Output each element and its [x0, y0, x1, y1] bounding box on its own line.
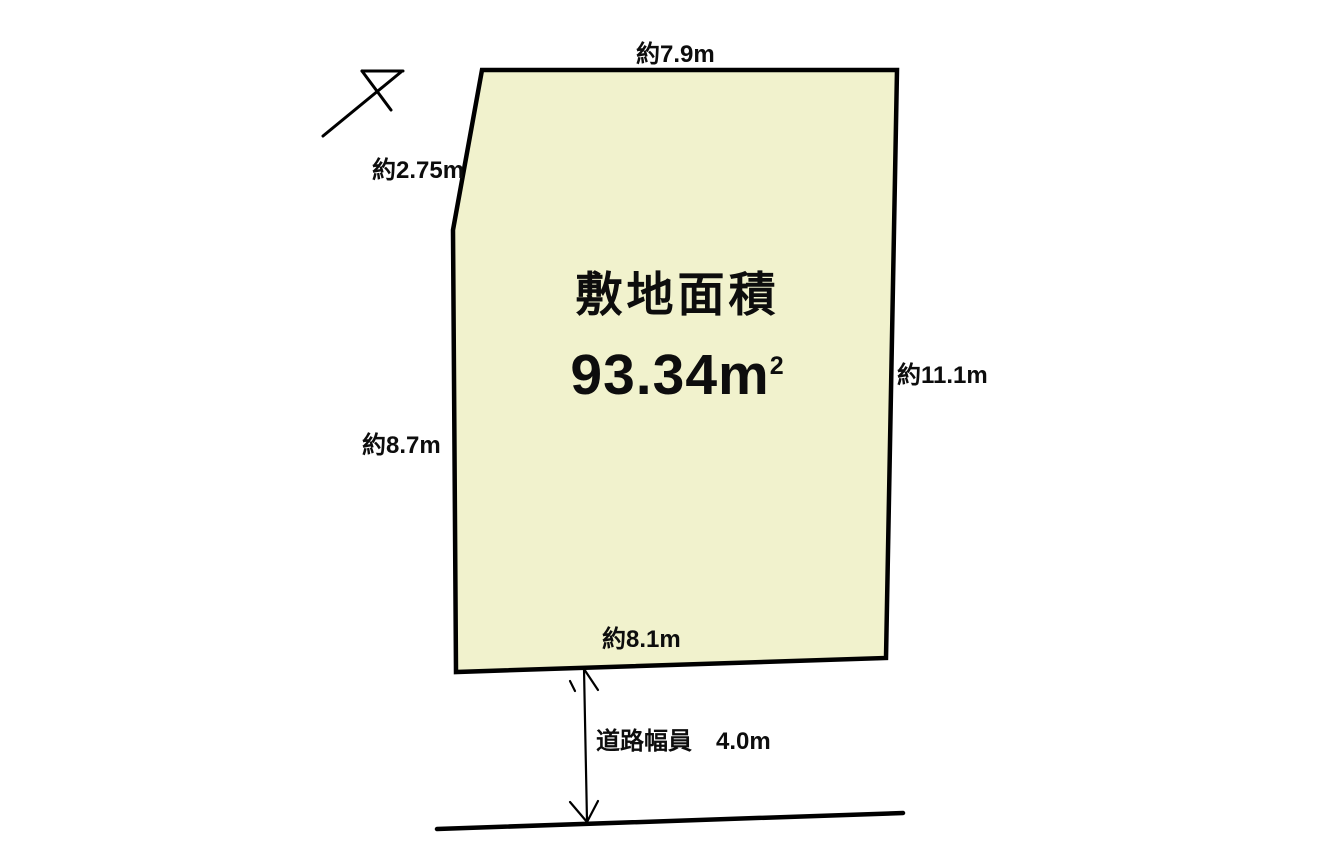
dimension-label-left: 約8.7m — [362, 433, 441, 459]
land-plot-diagram: 約7.9m 約2.75m 約8.7m 約11.1m 約8.1m 道路幅員 4.0… — [0, 0, 1339, 868]
dimension-label-bottom: 約8.1m — [602, 627, 681, 653]
north-arrow-icon — [323, 71, 403, 136]
road-width-label: 道路幅員 4.0m — [596, 729, 771, 755]
dimension-label-top: 約7.9m — [636, 42, 715, 68]
dimension-label-right: 約11.1m — [897, 363, 988, 389]
road-line — [437, 813, 903, 829]
dimension-label-upper-left: 約2.75m — [372, 158, 464, 184]
site-area-number: 93.34m — [570, 343, 769, 407]
site-area-value: 93.34m2 — [455, 344, 900, 407]
site-area-superscript: 2 — [770, 352, 785, 380]
site-area-label: 敷地面積 93.34m2 — [455, 268, 900, 407]
site-area-title: 敷地面積 — [455, 268, 900, 322]
road-width-arrow — [570, 669, 598, 822]
